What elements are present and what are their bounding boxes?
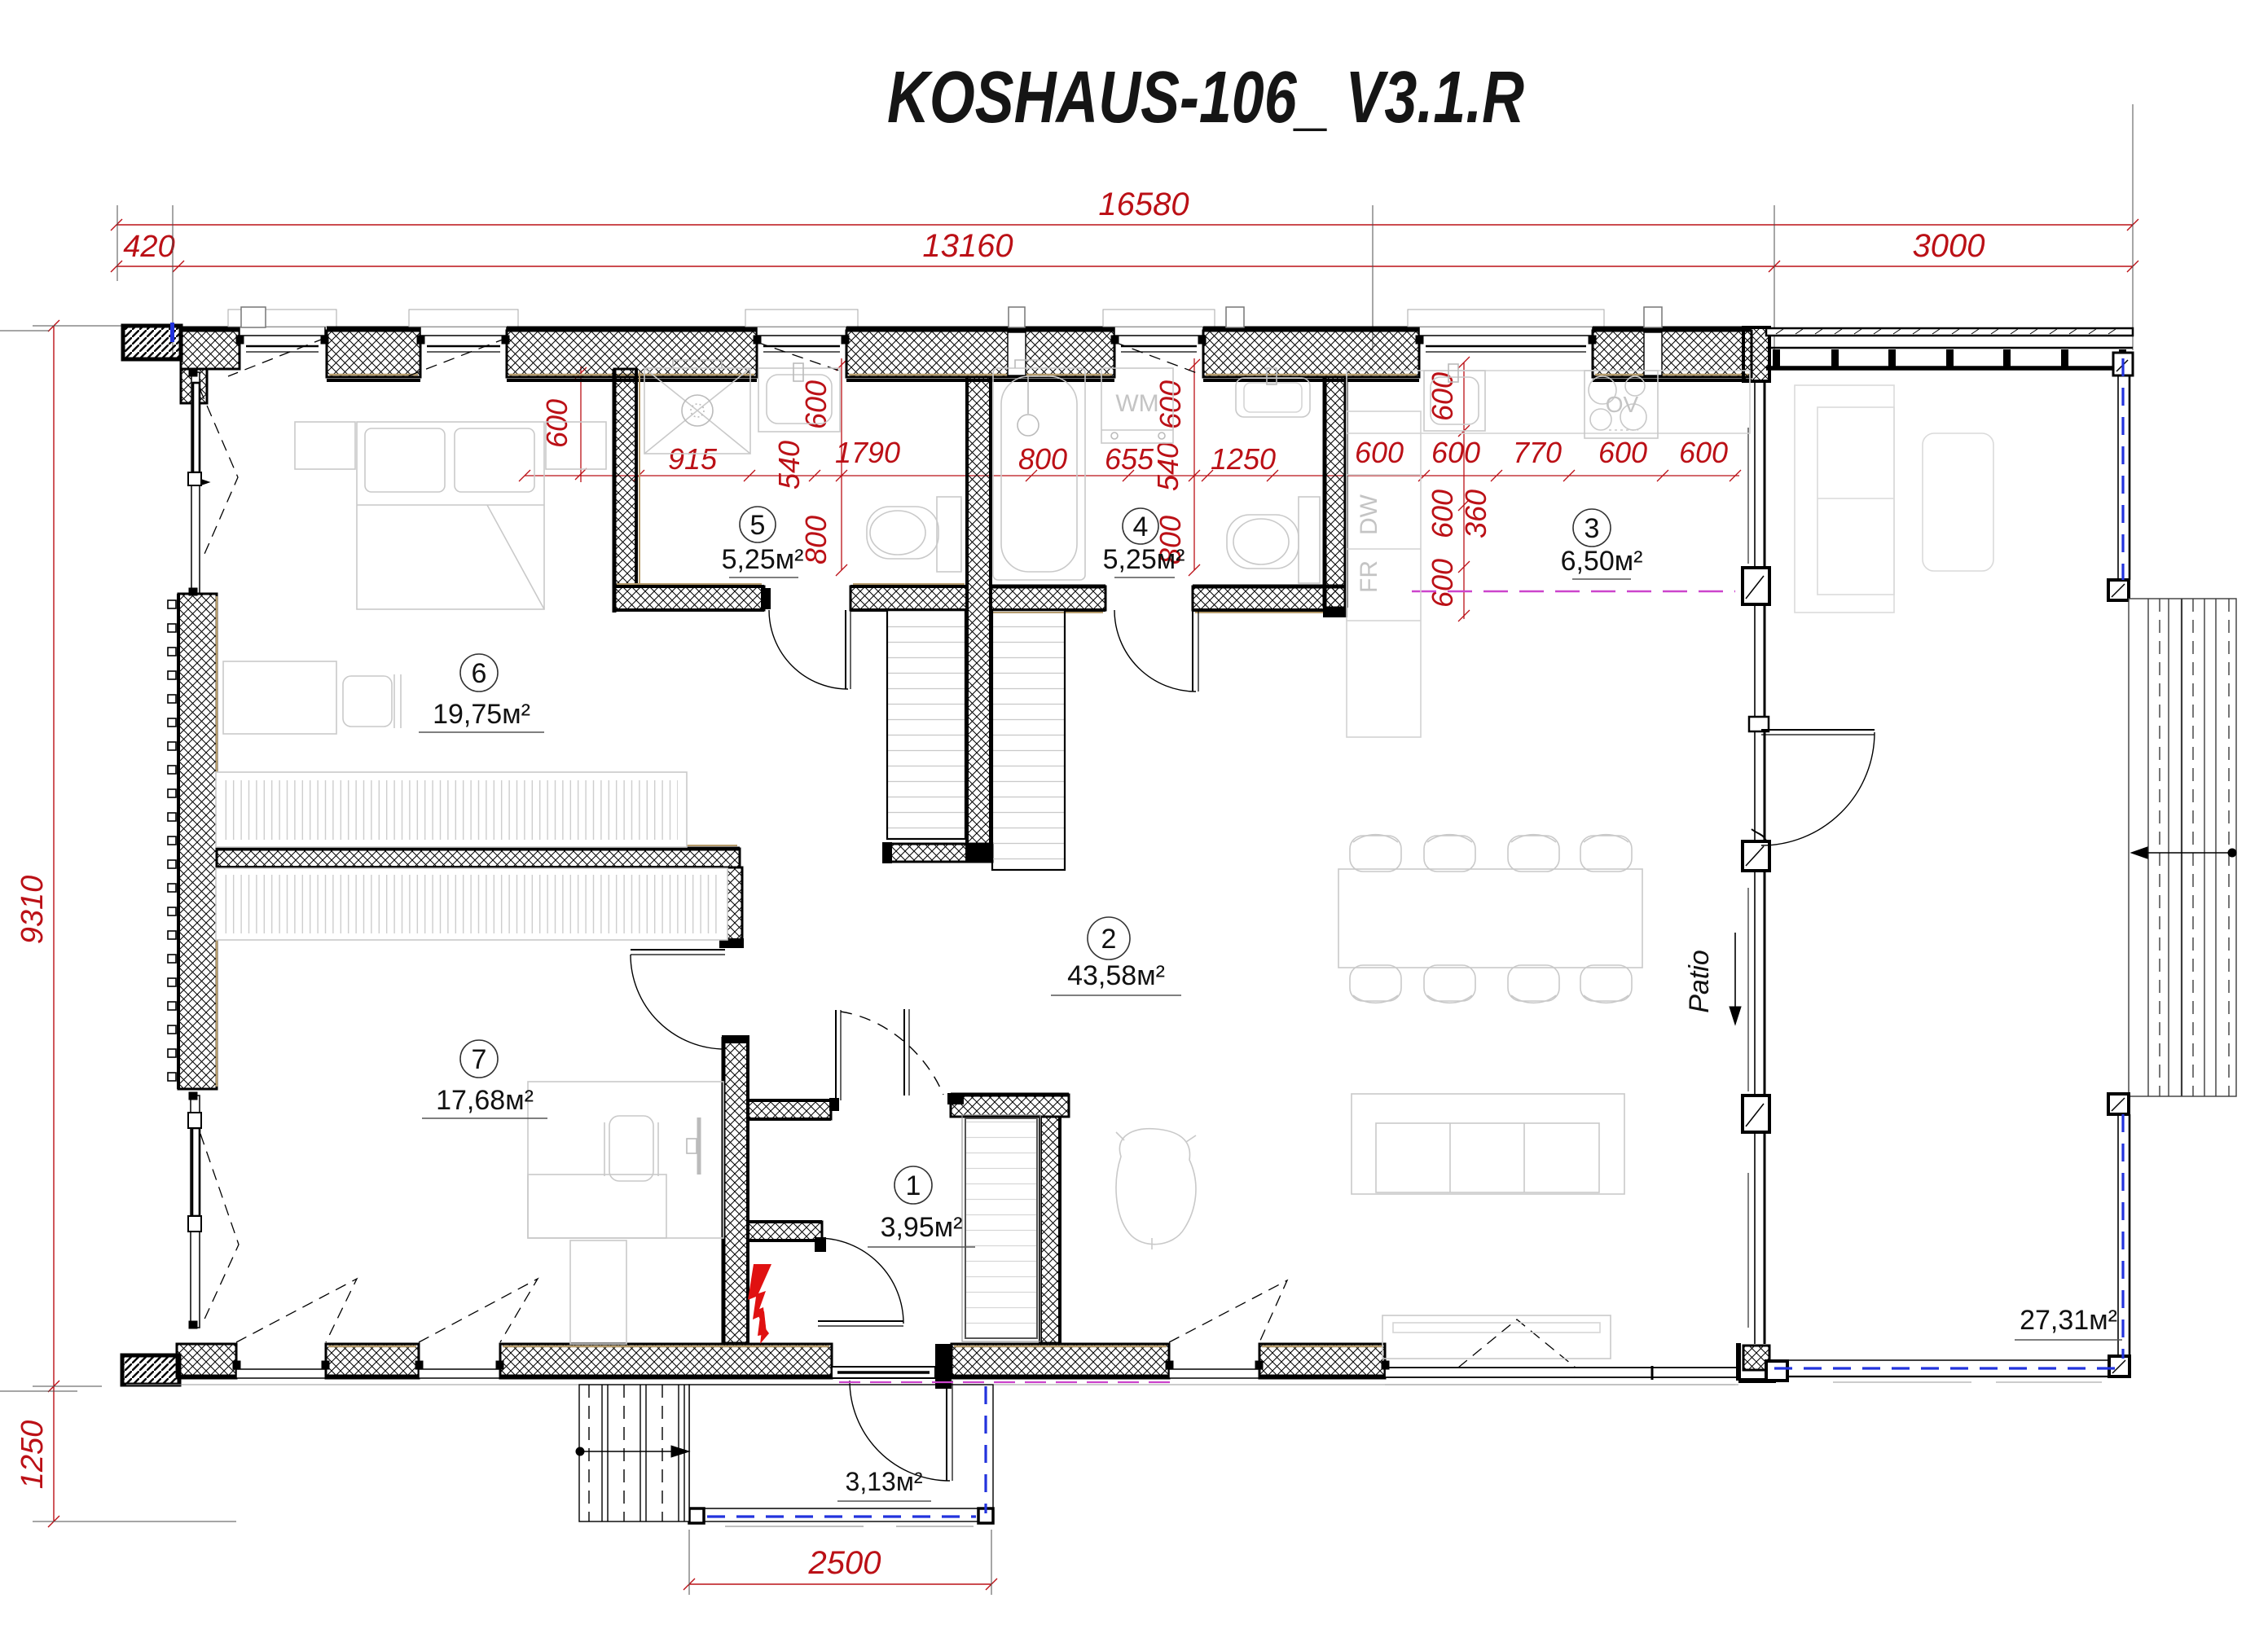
svg-text:1250: 1250 — [1211, 442, 1276, 476]
svg-text:600: 600 — [1431, 436, 1480, 469]
svg-text:915: 915 — [668, 442, 718, 476]
svg-text:6: 6 — [472, 658, 487, 689]
svg-text:5: 5 — [750, 510, 766, 541]
svg-text:27,31м²: 27,31м² — [2020, 1305, 2117, 1336]
svg-text:6,50м²: 6,50м² — [1561, 546, 1643, 577]
svg-text:2500: 2500 — [808, 1545, 881, 1581]
svg-text:800: 800 — [1018, 442, 1067, 476]
svg-text:600: 600 — [1679, 436, 1728, 469]
svg-text:360: 360 — [1459, 490, 1492, 538]
svg-text:1: 1 — [906, 1170, 921, 1201]
svg-text:17,68м²: 17,68м² — [436, 1085, 534, 1116]
svg-text:Patio: Patio — [1684, 950, 1715, 1013]
svg-text:3000: 3000 — [1913, 228, 1985, 264]
svg-text:600: 600 — [1355, 436, 1404, 469]
svg-text:19,75м²: 19,75м² — [433, 699, 530, 730]
svg-text:600: 600 — [1426, 559, 1459, 608]
svg-text:1790: 1790 — [835, 436, 900, 469]
svg-text:WM: WM — [1115, 390, 1158, 417]
svg-text:5,25м²: 5,25м² — [722, 544, 804, 575]
svg-text:9310: 9310 — [15, 876, 50, 945]
svg-text:5,25м²: 5,25м² — [1103, 544, 1185, 575]
svg-text:KOSHAUS-106_ V3.1.R: KOSHAUS-106_ V3.1.R — [887, 57, 1524, 138]
svg-text:FR: FR — [1356, 560, 1382, 593]
svg-text:DW: DW — [1356, 494, 1382, 535]
svg-text:3,13м²: 3,13м² — [846, 1467, 923, 1496]
svg-text:420: 420 — [123, 230, 174, 264]
svg-text:4: 4 — [1133, 512, 1149, 542]
svg-text:540: 540 — [772, 441, 806, 490]
svg-text:600: 600 — [1426, 490, 1459, 538]
svg-text:13160: 13160 — [922, 228, 1013, 264]
svg-text:655: 655 — [1105, 442, 1154, 476]
svg-text:770: 770 — [1513, 436, 1562, 469]
svg-text:600: 600 — [540, 399, 574, 448]
svg-text:3,95м²: 3,95м² — [881, 1212, 963, 1243]
svg-text:2: 2 — [1101, 924, 1117, 955]
svg-text:600: 600 — [799, 380, 833, 429]
svg-text:43,58м²: 43,58м² — [1067, 960, 1165, 991]
svg-text:1250: 1250 — [15, 1420, 50, 1490]
svg-text:7: 7 — [472, 1044, 487, 1075]
svg-text:540: 540 — [1151, 442, 1185, 491]
svg-text:600: 600 — [1598, 436, 1647, 469]
svg-text:3: 3 — [1585, 513, 1600, 544]
svg-text:16580: 16580 — [1098, 187, 1189, 222]
svg-text:800: 800 — [799, 516, 833, 564]
svg-text:OV: OV — [1606, 392, 1639, 417]
